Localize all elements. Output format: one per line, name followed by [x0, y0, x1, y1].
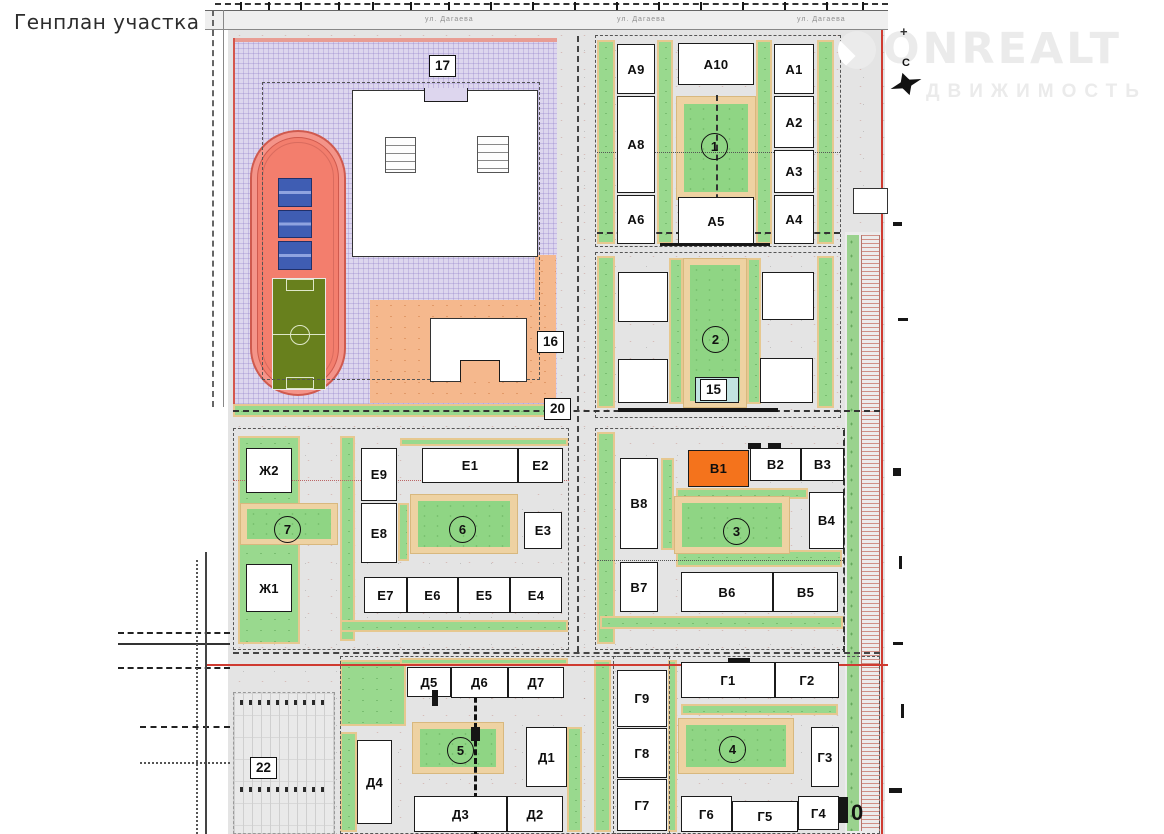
utility-mark [898, 318, 908, 321]
building-Е1: Е1 [422, 448, 518, 483]
building-label: А8 [627, 137, 644, 152]
building-В3: В3 [801, 448, 844, 481]
building-label: Д1 [538, 750, 555, 765]
utility-mark [471, 727, 480, 741]
building-Ж1: Ж1 [246, 564, 292, 612]
utility-tick [862, 2, 864, 10]
building-label: Г8 [634, 746, 649, 761]
utility-tick [268, 2, 270, 10]
building-label: Е8 [371, 526, 388, 541]
building-А6: А6 [617, 195, 655, 244]
parked-cars-row [240, 787, 328, 792]
building-Е8: Е8 [361, 503, 397, 563]
building-Д4: Д4 [357, 740, 392, 824]
building [762, 272, 814, 320]
utility-mark [893, 222, 902, 226]
building-Г4: Г4 [798, 796, 839, 830]
building-notch [460, 360, 500, 382]
building [618, 272, 668, 322]
boundary-line [196, 560, 198, 834]
building-Е3: Е3 [524, 512, 562, 549]
utility-tick [448, 2, 450, 10]
boundary-line [118, 667, 230, 669]
building-Е9: Е9 [361, 448, 397, 501]
building-label: Е4 [528, 588, 545, 603]
parking-area [233, 692, 335, 834]
building-label: А1 [785, 62, 802, 77]
building-notch [424, 88, 468, 102]
building-label: Д2 [526, 807, 543, 822]
building-label: Г2 [799, 673, 814, 688]
building-Г9: Г9 [617, 670, 667, 727]
utility-tick [826, 2, 828, 10]
boundary-line [223, 10, 224, 407]
building-label: Е7 [377, 588, 394, 603]
building-label: А9 [627, 62, 644, 77]
utility-mark [889, 788, 902, 793]
building-label: Д4 [366, 775, 383, 790]
boundary-line [212, 10, 214, 407]
courtyard-number-3: 3 [723, 518, 750, 545]
zone-number-15: 15 [700, 379, 727, 401]
building-Г7: Г7 [617, 779, 667, 831]
building-label: В2 [767, 457, 784, 472]
utility-tick [532, 2, 534, 10]
building [853, 188, 888, 214]
school-roof-block [385, 137, 416, 173]
building-А1: А1 [774, 44, 814, 94]
boundary-line [118, 632, 230, 634]
building-label: Е3 [535, 523, 552, 538]
building-В4: В4 [809, 492, 844, 549]
courtyard-number-2: 2 [702, 326, 729, 353]
zone-number-17: 17 [429, 55, 456, 77]
building-В6: В6 [681, 572, 773, 612]
building-Е7: Е7 [364, 577, 407, 613]
parked-cars-row [240, 700, 328, 705]
boundary-line [577, 36, 579, 652]
utility-mark [901, 704, 904, 718]
zone-number-22: 22 [250, 757, 277, 779]
zone-number-16: 16 [537, 331, 564, 353]
building-label: Е1 [462, 458, 479, 473]
building [760, 358, 813, 403]
zone-number-20: 20 [544, 398, 571, 420]
building-А5: А5 [678, 197, 754, 245]
building-А4: А4 [774, 195, 814, 244]
building-В2: В2 [750, 448, 801, 481]
building-Г5: Г5 [732, 801, 798, 832]
building-Ж2: Ж2 [246, 448, 292, 493]
utility-tick [616, 2, 618, 10]
building-label: В1 [710, 461, 727, 476]
utility-mark [660, 243, 770, 246]
street-name-label: ул. Дагаева [425, 16, 474, 23]
building-А8: А8 [617, 96, 655, 193]
street-name-label: ул. Дагаева [617, 16, 666, 23]
street-top: ул. Дагаева ул. Дагаева ул. Дагаева [205, 10, 888, 30]
utility-tick [410, 2, 412, 10]
boundary-line [597, 560, 843, 561]
utility-tick [700, 2, 702, 10]
utility-mark [893, 468, 901, 476]
utility-tick [338, 2, 340, 10]
utility-tick [372, 2, 374, 10]
building-label: В5 [797, 585, 814, 600]
building-Г1: Г1 [681, 662, 775, 698]
building-А10: А10 [678, 43, 754, 85]
page-title: Генплан участка [14, 10, 200, 34]
building-Д1: Д1 [526, 727, 567, 787]
building-Д2: Д2 [507, 796, 563, 832]
utility-mark [618, 408, 778, 412]
utility-mark [838, 797, 848, 823]
building-label: Г4 [811, 806, 826, 821]
building-В5: В5 [773, 572, 838, 612]
building-label: Е2 [532, 458, 549, 473]
building-Е4: Е4 [510, 577, 562, 613]
compass-rose: С [886, 58, 926, 97]
building-Д5: Д5 [407, 667, 451, 697]
boundary-line [233, 652, 880, 654]
building-label: А5 [707, 214, 724, 229]
street-name-label: ул. Дагаева [797, 16, 846, 23]
survey-cross-icon: + [900, 24, 908, 39]
building-label: А10 [704, 57, 729, 72]
building-label: Е5 [476, 588, 493, 603]
building-Г6: Г6 [681, 796, 732, 832]
building-label: Д7 [527, 675, 544, 690]
boundary-line [140, 762, 230, 764]
utility-mark [893, 642, 903, 645]
courtyard-number-1: 1 [701, 133, 728, 160]
boundary-line [233, 38, 235, 404]
building-label: А3 [785, 164, 802, 179]
courtyard-number-7: 7 [274, 516, 301, 543]
utility-tick [658, 2, 660, 10]
building-label: В8 [630, 496, 647, 511]
utility-tick [742, 2, 744, 10]
utility-tick [240, 2, 242, 10]
building-Г2: Г2 [775, 662, 839, 698]
boundary-line [881, 30, 883, 834]
building-Г8: Г8 [617, 728, 667, 778]
building-label: Г1 [720, 673, 735, 688]
building-label: В4 [818, 513, 835, 528]
courtyard-number-5: 5 [447, 737, 474, 764]
building-Е2: Е2 [518, 448, 563, 483]
compass-north-label: С [886, 58, 926, 69]
utility-tick [490, 2, 492, 10]
genplan-canvas: Генплан участка ул. Дагаева ул. Дагаева … [0, 0, 1164, 834]
building-label: Д5 [420, 675, 437, 690]
utility-mark [748, 443, 761, 449]
boundary-line [140, 726, 230, 728]
building-label: А4 [785, 212, 802, 227]
utility-tick [574, 2, 576, 10]
building-label: В3 [814, 457, 831, 472]
building-Е5: Е5 [458, 577, 510, 613]
building-А2: А2 [774, 96, 814, 148]
building-label: А6 [627, 212, 644, 227]
plan-layers: А9А10А1А8А2А3А6А5А4В1В2В3В8В4В7В6В5Ж2Е9Е… [0, 0, 1164, 834]
building-label: Ж2 [259, 463, 279, 478]
utility-mark [432, 690, 438, 706]
courtyard-number-6: 6 [449, 516, 476, 543]
building-label: Г9 [634, 691, 649, 706]
building-label: Д3 [452, 807, 469, 822]
building-Е6: Е6 [407, 577, 458, 613]
building-label: Ж1 [259, 581, 279, 596]
building-label: Г7 [634, 798, 649, 813]
utility-mark [768, 443, 781, 449]
building-label: В7 [630, 580, 647, 595]
building-label: А2 [785, 115, 802, 130]
boundary-line [215, 3, 888, 5]
building-Г3: Г3 [811, 727, 839, 787]
boundary-line [205, 552, 207, 834]
building-В8: В8 [620, 458, 658, 549]
building-label: Г5 [757, 809, 772, 824]
building-А3: А3 [774, 150, 814, 193]
utility-tick [300, 2, 302, 10]
building-label: Е6 [424, 588, 441, 603]
building-В1: В1 [688, 450, 749, 487]
utility-mark [899, 556, 902, 569]
plot-number-0: 0 [851, 800, 863, 826]
boundary-line [118, 643, 230, 645]
building-Д3: Д3 [414, 796, 507, 832]
building-А9: А9 [617, 44, 655, 94]
building-label: В6 [718, 585, 735, 600]
utility-tick [784, 2, 786, 10]
building-label: Е9 [371, 467, 388, 482]
courtyard-number-4: 4 [719, 736, 746, 763]
building-Д6: Д6 [451, 667, 508, 698]
building [352, 90, 538, 257]
building-label: Г6 [699, 807, 714, 822]
building-Д7: Д7 [508, 667, 564, 698]
compass-star-icon [885, 66, 927, 102]
utility-mark [728, 658, 750, 663]
building [618, 359, 668, 403]
building-В7: В7 [620, 562, 658, 612]
building-label: Г3 [817, 750, 832, 765]
building-label: Д6 [471, 675, 488, 690]
school-roof-block [477, 136, 509, 173]
